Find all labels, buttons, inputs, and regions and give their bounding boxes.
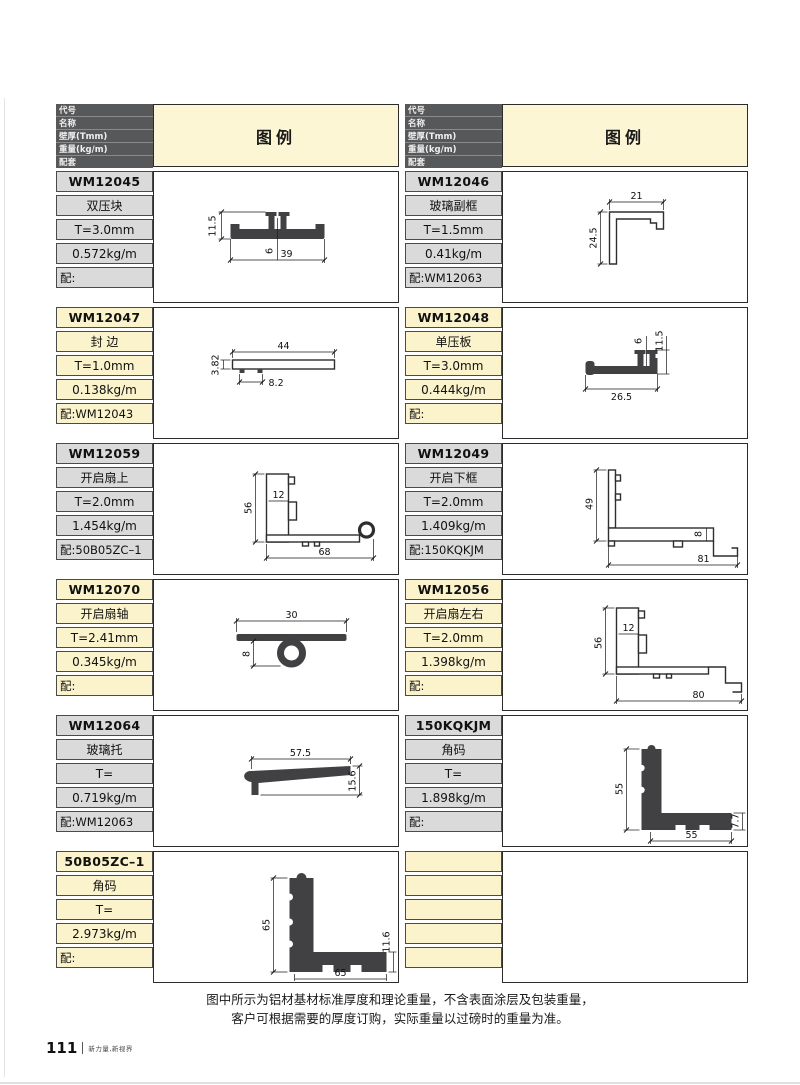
entry-block-wm12045: WM12045 双压块 T=3.0mm 0.572kg/m 配: xyxy=(56,171,399,303)
entry-code: WM12045 xyxy=(56,171,153,192)
entry-thickness: T=1.0mm xyxy=(56,355,153,376)
entry-name: 开启扇轴 xyxy=(56,603,153,624)
entry-weight: 1.454kg/m xyxy=(56,515,153,536)
entry-name: 双压块 xyxy=(56,195,153,216)
page-edge-bottom xyxy=(0,1082,800,1084)
legend-header: 图例 xyxy=(502,104,748,167)
entry-match: 配: xyxy=(56,947,153,968)
entry-labels: WM12056 开启扇左右 T=2.0mm 1.398kg/m 配: xyxy=(405,579,502,711)
entry-code: WM12059 xyxy=(56,443,153,464)
table-header: 代号 名称 壁厚(Tmm) 重量(kg/m) 配套 图例 xyxy=(405,104,748,167)
dim-label: 3.82 xyxy=(211,354,222,375)
entry-match: 配:WM12043 xyxy=(56,403,153,424)
dim-label: 11.5 xyxy=(655,330,666,351)
legend-header: 图例 xyxy=(153,104,399,167)
dim-label: 11.6 xyxy=(382,931,393,952)
entry-weight: 0.138kg/m xyxy=(56,379,153,400)
dim-label: 26.5 xyxy=(611,392,632,403)
drawing-box: 6 11.5 26.5 xyxy=(502,307,748,439)
entry-labels: WM12045 双压块 T=3.0mm 0.572kg/m 配: xyxy=(56,171,153,303)
entry-match: 配:WM12063 xyxy=(405,267,502,288)
entry-labels: WM12059 开启扇上 T=2.0mm 1.454kg/m 配:50B05ZC… xyxy=(56,443,153,575)
entry-thickness xyxy=(405,899,502,920)
drawing-box: 11.5 6 39 xyxy=(153,171,399,303)
entry-labels: WM12048 单压板 T=3.0mm 0.444kg/m 配: xyxy=(405,307,502,439)
entry-weight: 0.719kg/m xyxy=(56,787,153,808)
drawing-box: 65 11.6 65 xyxy=(153,851,399,983)
dim-label: 6 xyxy=(634,338,645,344)
dim-label: 55 xyxy=(615,783,626,795)
entry-code: WM12048 xyxy=(405,307,502,328)
profile-drawing-wm12056: 56 12 80 xyxy=(503,580,747,710)
dim-label: 65 xyxy=(334,968,346,979)
entry-block-wm12048: WM12048 单压板 T=3.0mm 0.444kg/m 配: xyxy=(405,307,748,439)
catalog-page: 代号 名称 壁厚(Tmm) 重量(kg/m) 配套 图例 WM12045 双压块… xyxy=(0,0,800,1085)
page-bar-divider xyxy=(82,1042,83,1054)
entry-code: 50B05ZC–1 xyxy=(56,851,153,872)
header-row-weight: 重量(kg/m) xyxy=(56,143,153,156)
entry-block-wm12059: WM12059 开启扇上 T=2.0mm 1.454kg/m 配:50B05ZC… xyxy=(56,443,399,575)
dim-label: 12 xyxy=(272,490,284,501)
dim-label: 6 xyxy=(265,248,276,254)
dim-label: 12 xyxy=(622,623,634,634)
entry-name: 开启扇左右 xyxy=(405,603,502,624)
entry-weight: 2.973kg/m xyxy=(56,923,153,944)
entry-block-150kqkjm: 150KQKJM 角码 T= 1.898kg/m 配: xyxy=(405,715,748,847)
header-row-name: 名称 xyxy=(56,117,153,130)
drawing-box: 49 8 81 xyxy=(502,443,748,575)
entry-name: 封 边 xyxy=(56,331,153,352)
dim-label: 56 xyxy=(244,502,255,514)
entry-match: 配:WM12063 xyxy=(56,811,153,832)
entry-thickness: T=2.0mm xyxy=(405,627,502,648)
entry-thickness: T= xyxy=(56,763,153,784)
table-header: 代号 名称 壁厚(Tmm) 重量(kg/m) 配套 图例 xyxy=(56,104,399,167)
dim-label: 7.7 xyxy=(731,813,742,828)
entry-code: WM12064 xyxy=(56,715,153,736)
entry-thickness: T=1.5mm xyxy=(405,219,502,240)
dim-label: 65 xyxy=(262,919,273,931)
entry-name: 角码 xyxy=(405,739,502,760)
entry-match: 配: xyxy=(405,675,502,696)
dim-label: 24.5 xyxy=(589,227,600,248)
header-row-weight: 重量(kg/m) xyxy=(405,143,502,156)
header-row-code: 代号 xyxy=(56,104,153,117)
header-row-thickness: 壁厚(Tmm) xyxy=(56,130,153,143)
entry-match: 配:50B05ZC–1 xyxy=(56,539,153,560)
header-row-thickness: 壁厚(Tmm) xyxy=(405,130,502,143)
entry-thickness: T=3.0mm xyxy=(56,219,153,240)
drawing-box: 57.5 15.6 xyxy=(153,715,399,847)
entry-weight: 1.398kg/m xyxy=(405,651,502,672)
dim-label: 55 xyxy=(685,830,697,841)
entry-thickness: T= xyxy=(56,899,153,920)
dim-label: 8.2 xyxy=(269,378,284,389)
entry-match: 配:150KQKJM xyxy=(405,539,502,560)
entry-code: WM12046 xyxy=(405,171,502,192)
profile-drawing-wm12046: 21 24.5 xyxy=(503,172,747,302)
entry-labels: 50B05ZC–1 角码 T= 2.973kg/m 配: xyxy=(56,851,153,983)
entry-block-50b05zc-1: 50B05ZC–1 角码 T= 2.973kg/m 配: xyxy=(56,851,399,983)
entry-labels xyxy=(405,851,502,983)
entry-weight: 0.41kg/m xyxy=(405,243,502,264)
entry-thickness: T=2.41mm xyxy=(56,627,153,648)
entry-labels: WM12047 封 边 T=1.0mm 0.138kg/m 配:WM12043 xyxy=(56,307,153,439)
dim-label: 68 xyxy=(318,547,330,558)
footer-note-line1: 图中所示为铝材基材标准厚度和理论重量，不含表面涂层及包装重量， xyxy=(0,990,800,1009)
entry-block-wm12046: WM12046 玻璃副框 T=1.5mm 0.41kg/m 配:WM12063 … xyxy=(405,171,748,303)
entry-code: WM12049 xyxy=(405,443,502,464)
entry-match: 配: xyxy=(405,403,502,424)
entry-name: 角码 xyxy=(56,875,153,896)
entry-name: 开启扇上 xyxy=(56,467,153,488)
dim-label: 15.6 xyxy=(348,770,359,791)
drawing-box: 21 24.5 xyxy=(502,171,748,303)
profile-drawing-wm12059: 56 12 68 xyxy=(154,444,398,574)
entry-match: 配: xyxy=(56,675,153,696)
entry-code: WM12070 xyxy=(56,579,153,600)
dim-label: 30 xyxy=(285,610,297,621)
entry-weight: 0.444kg/m xyxy=(405,379,502,400)
dim-label: 21 xyxy=(630,191,642,202)
entry-weight: 1.409kg/m xyxy=(405,515,502,536)
entry-match: 配: xyxy=(56,267,153,288)
spec-table-left: 代号 名称 壁厚(Tmm) 重量(kg/m) 配套 图例 WM12045 双压块… xyxy=(56,104,399,983)
dim-label: 49 xyxy=(585,498,596,510)
page-tagline: 新力量,新视界 xyxy=(88,1043,133,1053)
dim-label: 81 xyxy=(697,554,709,565)
entry-name: 玻璃副框 xyxy=(405,195,502,216)
drawing-box: 56 12 80 xyxy=(502,579,748,711)
profile-drawing-50b05zc-1: 65 11.6 65 xyxy=(154,852,398,982)
entry-code: WM12056 xyxy=(405,579,502,600)
drawing-box: 30 8 xyxy=(153,579,399,711)
footer-note-line2: 客户可根据需要的厚度订购，实际重量以过磅时的重量为准。 xyxy=(0,1009,800,1028)
drawing-box-empty xyxy=(502,851,748,983)
profile-drawing-wm12045: 11.5 6 39 xyxy=(154,172,398,302)
header-row-code: 代号 xyxy=(405,104,502,117)
header-row-name: 名称 xyxy=(405,117,502,130)
entry-block-wm12047: WM12047 封 边 T=1.0mm 0.138kg/m 配:WM12043 … xyxy=(56,307,399,439)
entry-weight: 0.345kg/m xyxy=(56,651,153,672)
entry-thickness: T=2.0mm xyxy=(56,491,153,512)
dim-label: 11.5 xyxy=(208,215,219,236)
header-row-match: 配套 xyxy=(56,156,153,168)
dim-label: 56 xyxy=(594,637,605,649)
entry-weight xyxy=(405,923,502,944)
entry-name: 玻璃托 xyxy=(56,739,153,760)
entry-block-wm12056: WM12056 开启扇左右 T=2.0mm 1.398kg/m 配: xyxy=(405,579,748,711)
spec-table-right: 代号 名称 壁厚(Tmm) 重量(kg/m) 配套 图例 WM12046 玻璃副… xyxy=(405,104,748,983)
entry-thickness: T=3.0mm xyxy=(405,355,502,376)
entry-labels: WM12064 玻璃托 T= 0.719kg/m 配:WM12063 xyxy=(56,715,153,847)
entry-weight: 1.898kg/m xyxy=(405,787,502,808)
header-labels: 代号 名称 壁厚(Tmm) 重量(kg/m) 配套 xyxy=(56,104,153,167)
drawing-box: 55 55 7.7 xyxy=(502,715,748,847)
profile-drawing-wm12070: 30 8 xyxy=(154,580,398,710)
entry-labels: WM12049 开启下框 T=2.0mm 1.409kg/m 配:150KQKJ… xyxy=(405,443,502,575)
entry-labels: 150KQKJM 角码 T= 1.898kg/m 配: xyxy=(405,715,502,847)
profile-drawing-wm12048: 6 11.5 26.5 xyxy=(503,308,747,438)
entry-code: WM12047 xyxy=(56,307,153,328)
drawing-box: 56 12 68 xyxy=(153,443,399,575)
entry-block-wm12064: WM12064 玻璃托 T= 0.719kg/m 配:WM12063 57.5 xyxy=(56,715,399,847)
dim-label: 39 xyxy=(280,249,292,260)
entry-block-wm12049: WM12049 开启下框 T=2.0mm 1.409kg/m 配:150KQKJ… xyxy=(405,443,748,575)
entry-code: 150KQKJM xyxy=(405,715,502,736)
dim-label: 8 xyxy=(694,531,705,537)
dim-label: 80 xyxy=(692,690,704,701)
page-bar: 111 新力量,新视界 xyxy=(46,1039,133,1057)
page-number: 111 xyxy=(46,1039,77,1057)
entry-name xyxy=(405,875,502,896)
entry-block-empty xyxy=(405,851,748,983)
page-edge-left xyxy=(4,98,5,1077)
drawing-box: 3.82 44 8.2 xyxy=(153,307,399,439)
entry-weight: 0.572kg/m xyxy=(56,243,153,264)
entry-name: 开启下框 xyxy=(405,467,502,488)
entry-code xyxy=(405,851,502,872)
profile-drawing-150kqkjm: 55 55 7.7 xyxy=(503,716,747,846)
header-labels: 代号 名称 壁厚(Tmm) 重量(kg/m) 配套 xyxy=(405,104,502,167)
dim-label: 57.5 xyxy=(290,748,311,759)
header-row-match: 配套 xyxy=(405,156,502,168)
entry-match xyxy=(405,947,502,968)
entry-labels: WM12046 玻璃副框 T=1.5mm 0.41kg/m 配:WM12063 xyxy=(405,171,502,303)
entry-thickness: T=2.0mm xyxy=(405,491,502,512)
footer-note: 图中所示为铝材基材标准厚度和理论重量，不含表面涂层及包装重量， 客户可根据需要的… xyxy=(0,990,800,1029)
entry-thickness: T= xyxy=(405,763,502,784)
entry-labels: WM12070 开启扇轴 T=2.41mm 0.345kg/m 配: xyxy=(56,579,153,711)
entry-name: 单压板 xyxy=(405,331,502,352)
profile-drawing-wm12047: 3.82 44 8.2 xyxy=(154,308,398,438)
dim-label: 44 xyxy=(277,341,289,352)
spec-tables: 代号 名称 壁厚(Tmm) 重量(kg/m) 配套 图例 WM12045 双压块… xyxy=(56,104,748,983)
entry-block-wm12070: WM12070 开启扇轴 T=2.41mm 0.345kg/m 配: xyxy=(56,579,399,711)
entry-match: 配: xyxy=(405,811,502,832)
dim-label: 8 xyxy=(242,651,253,657)
profile-drawing-wm12049: 49 8 81 xyxy=(503,444,747,574)
profile-drawing-wm12064: 57.5 15.6 xyxy=(154,716,398,846)
